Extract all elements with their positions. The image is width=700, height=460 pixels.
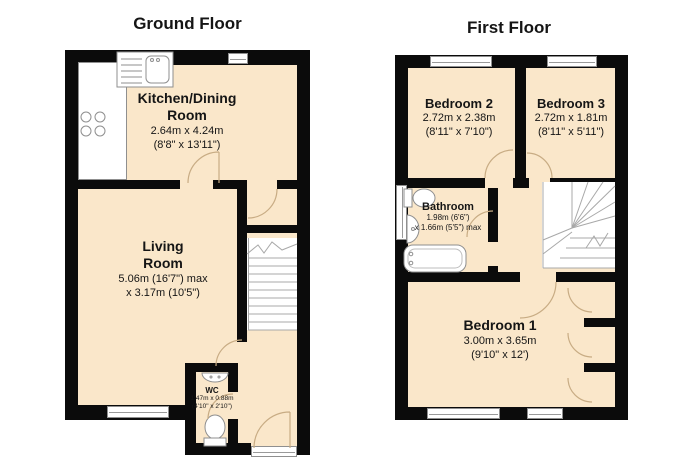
room-dims-metric: 1.47m x 0.88m: [184, 395, 240, 403]
wall: [185, 443, 251, 455]
room-dims-imperial: x 3.17m (10'5"): [83, 286, 243, 300]
wall: [556, 272, 615, 282]
wall: [297, 50, 310, 455]
room-dims-metric: 3.00m x 3.65m: [418, 334, 582, 348]
room-dims-imperial: (8'11" x 7'10"): [406, 125, 512, 139]
room-name-line: Kitchen/Dining: [97, 90, 277, 107]
wall: [228, 419, 238, 445]
front-door-threshold: [251, 446, 297, 457]
ground-floor-title: Ground Floor: [75, 14, 300, 34]
room-dims-metric: 5.06m (16'7") max: [83, 272, 243, 286]
wall: [395, 272, 520, 282]
room-dims-metric: 2.72m x 1.81m: [524, 111, 618, 125]
first-floor-title: First Floor: [395, 18, 623, 38]
room-dims-metric: 2.64m x 4.24m: [97, 124, 277, 138]
wall: [65, 50, 78, 420]
living-room-window: [107, 406, 169, 418]
living-room-label: Living Room 5.06m (16'7") max x 3.17m (1…: [83, 238, 243, 300]
wall: [65, 180, 180, 189]
bedroom1-label: Bedroom 1 3.00m x 3.65m (9'10" x 12'): [418, 317, 582, 362]
room-dims-imperial: x 1.66m (5'5") max: [406, 223, 490, 233]
wall: [238, 225, 297, 233]
room-name: Bedroom 2: [406, 96, 512, 111]
bedroom2-window: [430, 56, 492, 67]
room-name-line: Room: [83, 255, 243, 272]
room-dims-imperial: (4'10" x 2'10"): [184, 403, 240, 411]
room-dims-imperial: (8'8" x 13'11"): [97, 138, 277, 152]
room-name-line: Living: [83, 238, 243, 255]
room-name-line: Room: [97, 107, 277, 124]
bedroom1-window-left: [427, 408, 500, 419]
room-dims-metric: 2.72m x 2.38m: [406, 111, 512, 125]
wall: [513, 178, 529, 188]
room-name: Bedroom 3: [524, 96, 618, 111]
room-name: Bedroom 1: [418, 317, 582, 334]
bedroom1-window-right: [527, 408, 563, 419]
bathroom-label: Bathroom 1.98m (6'6") x 1.66m (5'5") max: [406, 201, 490, 233]
room-name: Bathroom: [406, 201, 490, 213]
bedroom2-label: Bedroom 2 2.72m x 2.38m (8'11" x 7'10"): [406, 96, 512, 139]
wall: [550, 178, 615, 188]
bedroom3-label: Bedroom 3 2.72m x 1.81m (8'11" x 5'11"): [524, 96, 618, 139]
kitchen-window: [228, 53, 248, 64]
room-dims-imperial: (9'10" x 12'): [418, 348, 582, 362]
wall: [584, 318, 615, 327]
room-dims-metric: 1.98m (6'6"): [406, 213, 490, 223]
bedroom3-window: [547, 56, 597, 67]
wall: [584, 363, 615, 372]
floorplan-page: { "colors": { "wall": "#0b0b0b", "room_f…: [0, 0, 700, 460]
room-name: WC: [184, 386, 240, 395]
wall: [395, 178, 485, 188]
kitchen-dining-label: Kitchen/Dining Room 2.64m x 4.24m (8'8" …: [97, 90, 277, 152]
wall: [277, 180, 297, 189]
room-dims-imperial: (8'11" x 5'11"): [524, 125, 618, 139]
wc-label: WC 1.47m x 0.88m (4'10" x 2'10"): [184, 386, 240, 410]
